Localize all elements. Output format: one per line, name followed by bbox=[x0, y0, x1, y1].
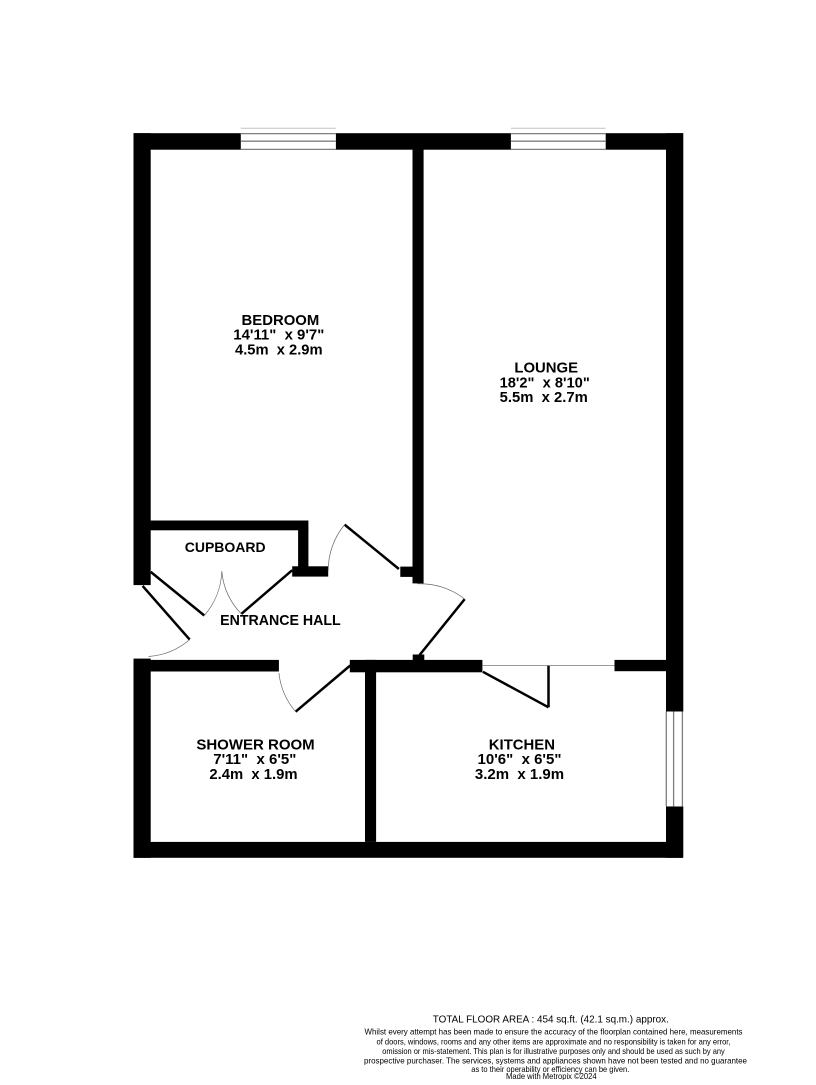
svg-text:5.5m x 2.7m: 5.5m x 2.7m bbox=[500, 389, 588, 406]
svg-text:ENTRANCE HALL: ENTRANCE HALL bbox=[220, 612, 341, 629]
svg-text:TOTAL FLOOR AREA : 454 sq.ft.: TOTAL FLOOR AREA : 454 sq.ft. (42.1 sq.m… bbox=[433, 1014, 669, 1026]
svg-text:of doors, windows, rooms and a: of doors, windows, rooms and any other i… bbox=[377, 1036, 731, 1046]
svg-text:4.5m x 2.9m: 4.5m x 2.9m bbox=[235, 342, 323, 359]
svg-text:Whilst every attempt has been: Whilst every attempt has been made to en… bbox=[365, 1027, 743, 1037]
svg-text:3.2m x 1.9m: 3.2m x 1.9m bbox=[475, 766, 564, 783]
svg-text:CUPBOARD: CUPBOARD bbox=[185, 539, 266, 555]
svg-text:omission or mis-statement. Thi: omission or mis-statement. This plan is … bbox=[382, 1046, 725, 1056]
svg-text:2.4m x 1.9m: 2.4m x 1.9m bbox=[209, 766, 297, 783]
svg-text:Made with Metropix ©2024: Made with Metropix ©2024 bbox=[506, 1072, 597, 1080]
